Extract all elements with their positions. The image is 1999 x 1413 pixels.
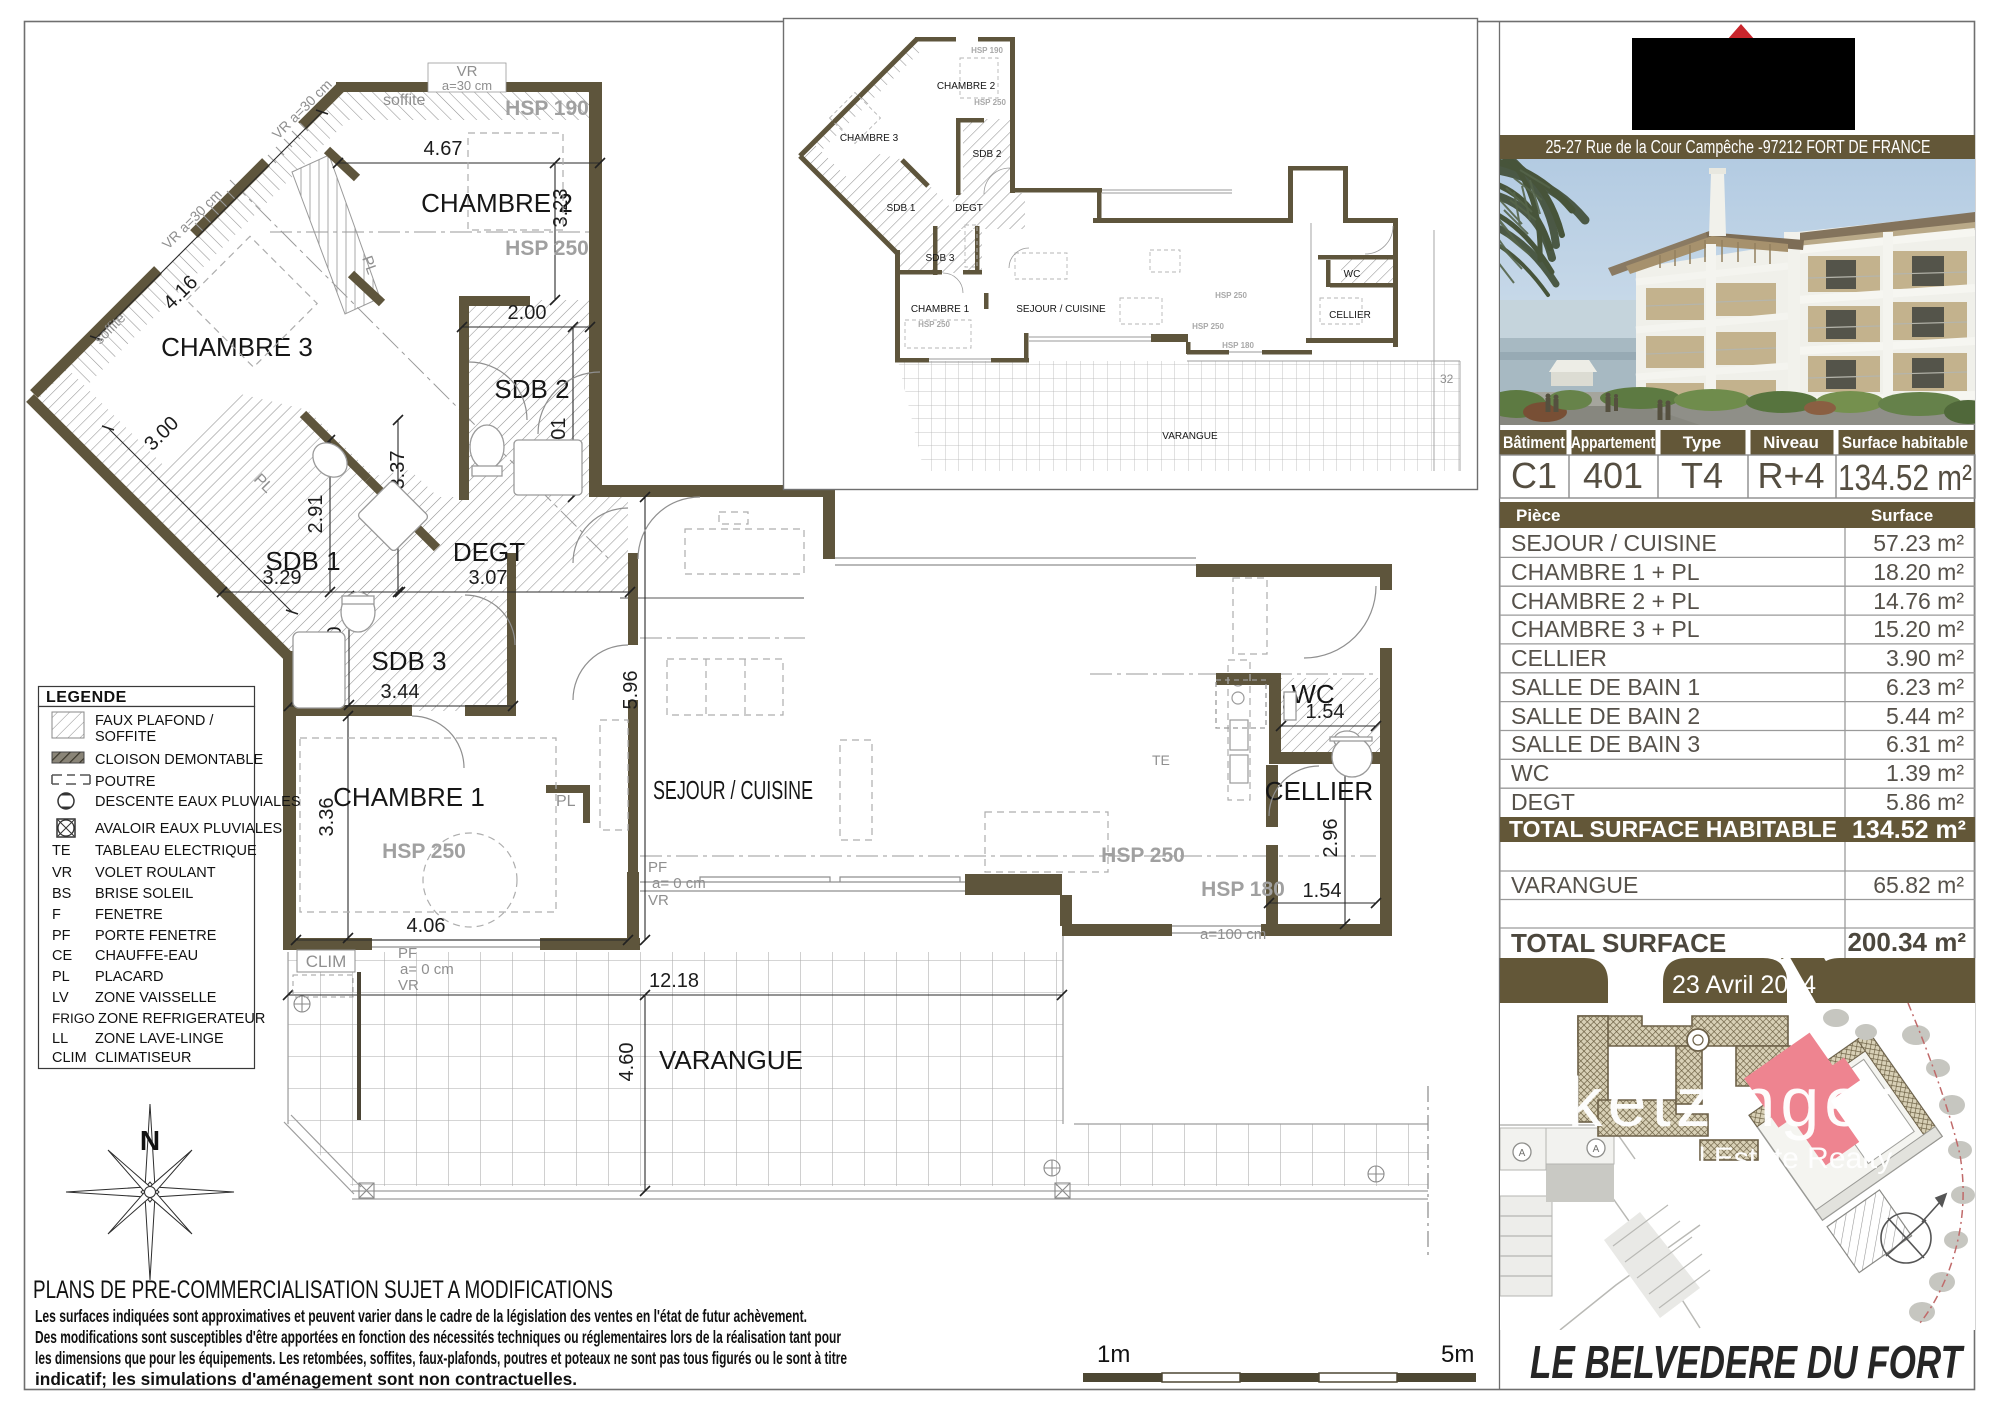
svg-text:2.91: 2.91 <box>305 495 327 534</box>
svg-text:HSP 180: HSP 180 <box>1201 878 1285 901</box>
svg-text:CHAMBRE 2: CHAMBRE 2 <box>421 188 573 218</box>
svg-text:ZONE VAISSELLE: ZONE VAISSELLE <box>95 990 217 1006</box>
svg-text:32: 32 <box>1440 372 1454 386</box>
svg-text:PF: PF <box>648 859 667 876</box>
svg-text:LEGENDE: LEGENDE <box>46 689 127 706</box>
svg-text:FAUX PLAFOND /: FAUX PLAFOND / <box>95 713 214 729</box>
svg-text:DESCENTE EAUX PLUVIALES: DESCENTE EAUX PLUVIALES <box>95 794 301 810</box>
svg-text:a=30 cm: a=30 cm <box>442 78 492 93</box>
svg-text:SOFFITE: SOFFITE <box>95 729 157 745</box>
svg-text:HSP 250: HSP 250 <box>505 237 589 260</box>
svg-text:CHAMBRE 1: CHAMBRE 1 <box>333 782 485 812</box>
svg-text:2.96: 2.96 <box>1320 819 1342 858</box>
svg-text:SEJOUR / CUISINE: SEJOUR / CUISINE <box>1511 530 1717 556</box>
svg-text:CELLIER: CELLIER <box>1265 776 1373 806</box>
svg-text:WC: WC <box>1511 760 1549 786</box>
svg-text:CHAMBRE 3: CHAMBRE 3 <box>840 133 899 144</box>
svg-text:TE: TE <box>1152 752 1170 768</box>
svg-text:Real Estate Realty: Real Estate Realty <box>1644 1142 1892 1175</box>
svg-text:ZONE LAVE-LINGE: ZONE LAVE-LINGE <box>95 1031 224 1047</box>
svg-text:25-27 Rue de la Cour Campêche: 25-27 Rue de la Cour Campêche -97212 FOR… <box>1546 137 1931 157</box>
svg-text:LE BELVEDERE DU FORT: LE BELVEDERE DU FORT <box>1530 1336 1965 1388</box>
svg-text:CHAUFFE-EAU: CHAUFFE-EAU <box>95 948 198 964</box>
svg-text:TABLEAU ELECTRIQUE: TABLEAU ELECTRIQUE <box>95 843 257 859</box>
svg-text:3.44: 3.44 <box>381 681 420 703</box>
svg-text:Surface: Surface <box>1871 506 1933 525</box>
svg-text:2.00: 2.00 <box>508 302 547 324</box>
svg-text:SDB 1: SDB 1 <box>887 203 916 214</box>
svg-text:SEJOUR / CUISINE: SEJOUR / CUISINE <box>1016 304 1106 315</box>
svg-text:5m: 5m <box>1441 1341 1474 1368</box>
svg-text:12.18: 12.18 <box>649 970 699 992</box>
svg-text:AVALOIR EAUX PLUVIALES: AVALOIR EAUX PLUVIALES <box>95 821 282 837</box>
svg-text:VR: VR <box>648 892 669 909</box>
svg-text:SDB 2: SDB 2 <box>973 149 1002 160</box>
svg-text:CHAMBRE 3: CHAMBRE 3 <box>161 332 313 362</box>
svg-text:401: 401 <box>1583 455 1643 496</box>
svg-text:VR: VR <box>52 865 72 881</box>
svg-text:Surface habitable: Surface habitable <box>1842 433 1968 452</box>
svg-text:3.07: 3.07 <box>469 567 508 589</box>
svg-text:Niveau: Niveau <box>1763 433 1819 452</box>
svg-text:3.90 m²: 3.90 m² <box>1886 645 1964 671</box>
svg-text:6.23 m²: 6.23 m² <box>1886 674 1964 700</box>
svg-text:5.96: 5.96 <box>620 671 642 710</box>
svg-text:CE: CE <box>52 948 72 964</box>
svg-text:SDB 3: SDB 3 <box>926 253 955 264</box>
svg-text:soffite: soffite <box>383 92 426 109</box>
svg-text:6.31 m²: 6.31 m² <box>1886 731 1964 757</box>
svg-text:23 Avril 2024: 23 Avril 2024 <box>1672 971 1816 999</box>
svg-text:R+4: R+4 <box>1757 455 1824 496</box>
svg-text:CLOISON DEMONTABLE: CLOISON DEMONTABLE <box>95 752 263 768</box>
svg-text:WC: WC <box>1291 679 1334 709</box>
svg-text:18.20 m²: 18.20 m² <box>1873 559 1964 585</box>
svg-text:ZONE REFRIGERATEUR: ZONE REFRIGERATEUR <box>98 1011 265 1027</box>
svg-text:SALLE DE BAIN 2: SALLE DE BAIN 2 <box>1511 703 1700 729</box>
svg-text:CHAMBRE 3 + PL: CHAMBRE 3 + PL <box>1511 616 1700 642</box>
svg-text:DEGT: DEGT <box>1511 789 1575 815</box>
svg-text:HSP 190: HSP 190 <box>505 97 589 120</box>
svg-text:Type: Type <box>1683 433 1721 452</box>
svg-text:CELLIER: CELLIER <box>1329 310 1371 321</box>
svg-text:CLIM: CLIM <box>52 1050 87 1066</box>
svg-text:BS: BS <box>52 886 71 902</box>
svg-text:a= 0 cm: a= 0 cm <box>400 961 454 978</box>
svg-text:4.06: 4.06 <box>407 915 446 937</box>
svg-text:TE: TE <box>52 843 71 859</box>
svg-text:N: N <box>140 1125 160 1156</box>
svg-text:DEGT: DEGT <box>453 537 525 567</box>
svg-text:VARANGUE: VARANGUE <box>1162 431 1218 442</box>
svg-text:134.52 m²: 134.52 m² <box>1838 457 1972 498</box>
svg-text:a= 0 cm: a= 0 cm <box>652 875 706 892</box>
svg-text:14.76 m²: 14.76 m² <box>1873 588 1964 614</box>
svg-text:HSP 250: HSP 250 <box>918 320 950 329</box>
svg-text:SDB 1: SDB 1 <box>265 546 340 576</box>
svg-text:T4: T4 <box>1681 455 1723 496</box>
svg-text:PLACARD: PLACARD <box>95 969 164 985</box>
svg-text:SALLE DE BAIN 1: SALLE DE BAIN 1 <box>1511 674 1700 700</box>
svg-text:200.34 m²: 200.34 m² <box>1847 927 1966 957</box>
svg-text:134.52 m²: 134.52 m² <box>1852 816 1966 844</box>
svg-text:Des modifications sont suscept: Des modifications sont susceptibles d'êt… <box>35 1327 841 1347</box>
svg-text:CHAMBRE 2 + PL: CHAMBRE 2 + PL <box>1511 588 1700 614</box>
svg-text:C1: C1 <box>1511 455 1557 496</box>
svg-text:ketzinger: ketzinger <box>1567 1063 1896 1141</box>
svg-text:1.39 m²: 1.39 m² <box>1886 760 1964 786</box>
svg-text:CLIMATISEUR: CLIMATISEUR <box>95 1050 191 1066</box>
svg-text:DEGT: DEGT <box>955 203 983 214</box>
svg-text:PL: PL <box>52 969 70 985</box>
svg-text:TOTAL SURFACE: TOTAL SURFACE <box>1511 928 1726 958</box>
svg-text:HSP 250: HSP 250 <box>1192 322 1224 331</box>
svg-text:CHAMBRE 1 + PL: CHAMBRE 1 + PL <box>1511 559 1700 585</box>
svg-text:5.44 m²: 5.44 m² <box>1886 703 1964 729</box>
svg-text:HSP 250: HSP 250 <box>974 98 1006 107</box>
svg-text:a=100 cm: a=100 cm <box>1200 926 1266 943</box>
svg-text:VR: VR <box>398 977 419 994</box>
svg-text:LL: LL <box>52 1031 68 1047</box>
svg-text:A: A <box>1519 1148 1526 1159</box>
svg-text:1m: 1m <box>1097 1341 1130 1368</box>
svg-text:CHAMBRE 2: CHAMBRE 2 <box>937 81 996 92</box>
svg-text:4.67: 4.67 <box>424 138 463 160</box>
svg-text:PL: PL <box>556 793 576 810</box>
svg-text:HSP 180: HSP 180 <box>1222 341 1254 350</box>
svg-text:15.20 m²: 15.20 m² <box>1873 616 1964 642</box>
svg-text:SEJOUR / CUISINE: SEJOUR / CUISINE <box>653 775 813 805</box>
svg-text:BRISE SOLEIL: BRISE SOLEIL <box>95 886 193 902</box>
svg-text:4.60: 4.60 <box>616 1043 638 1082</box>
svg-text:F: F <box>52 907 61 923</box>
svg-text:SDB 3: SDB 3 <box>371 646 446 676</box>
svg-text:Appartement: Appartement <box>1571 433 1655 452</box>
svg-text:Bâtiment: Bâtiment <box>1503 433 1565 452</box>
svg-text:VARANGUE: VARANGUE <box>659 1045 803 1075</box>
svg-text:PLANS DE PRE-COMMERCIALISATION: PLANS DE PRE-COMMERCIALISATION SUJET A M… <box>33 1276 613 1304</box>
svg-text:65.82 m²: 65.82 m² <box>1873 872 1964 898</box>
svg-text:1.54: 1.54 <box>1303 880 1342 902</box>
svg-text:PORTE FENETRE: PORTE FENETRE <box>95 928 217 944</box>
svg-text:HSP 250: HSP 250 <box>1215 291 1247 300</box>
svg-text:FRIGO: FRIGO <box>52 1011 95 1026</box>
svg-text:CLIM: CLIM <box>306 952 347 971</box>
svg-text:HSP 250: HSP 250 <box>1101 844 1185 867</box>
svg-text:57.23 m²: 57.23 m² <box>1873 530 1964 556</box>
svg-text:VARANGUE: VARANGUE <box>1511 872 1638 898</box>
svg-text:SDB 2: SDB 2 <box>494 374 569 404</box>
svg-text:POUTRE: POUTRE <box>95 774 156 790</box>
svg-text:les dimensions que pour les éq: les dimensions que pour les équipements.… <box>35 1348 847 1368</box>
svg-text:HSP 250: HSP 250 <box>382 840 466 863</box>
svg-text:LV: LV <box>52 990 69 1006</box>
svg-text:TOTAL SURFACE HABITABLE: TOTAL SURFACE HABITABLE <box>1509 816 1837 842</box>
svg-text:Pièce: Pièce <box>1516 506 1560 525</box>
svg-text:WC: WC <box>1344 269 1361 280</box>
svg-text:VOLET ROULANT: VOLET ROULANT <box>95 865 216 881</box>
svg-text:CHAMBRE 1: CHAMBRE 1 <box>911 304 970 315</box>
svg-text:PF: PF <box>52 928 71 944</box>
svg-text:5.86 m²: 5.86 m² <box>1886 789 1964 815</box>
svg-text:FENETRE: FENETRE <box>95 907 163 923</box>
svg-text:indicatif; les simulations d'a: indicatif; les simulations d'aménagement… <box>35 1369 577 1389</box>
svg-text:PF: PF <box>398 945 417 962</box>
svg-text:SALLE DE BAIN 3: SALLE DE BAIN 3 <box>1511 731 1700 757</box>
svg-text:Les surfaces indiquées sont ap: Les surfaces indiquées sont approximativ… <box>35 1306 807 1326</box>
svg-text:CELLIER: CELLIER <box>1511 645 1607 671</box>
svg-text:HSP 190: HSP 190 <box>971 46 1003 55</box>
svg-text:A: A <box>1593 1144 1600 1155</box>
